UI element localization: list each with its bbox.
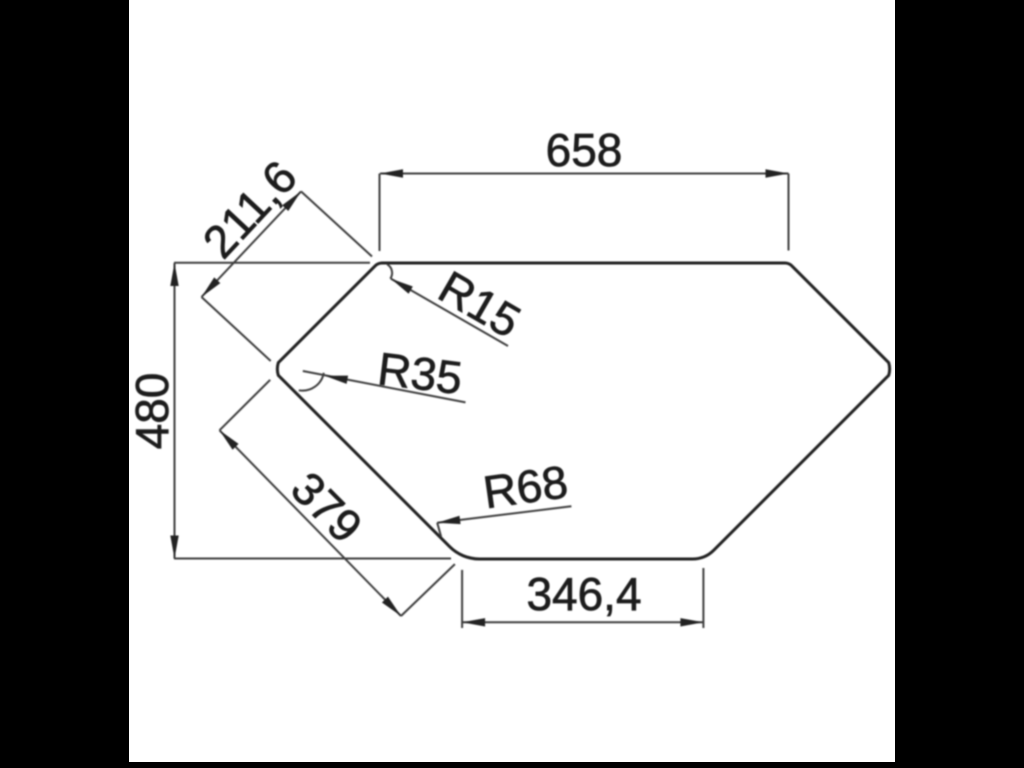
svg-text:480: 480 (126, 373, 178, 450)
svg-text:658: 658 (546, 124, 623, 176)
svg-text:211,6: 211,6 (193, 151, 307, 268)
svg-text:R15: R15 (430, 260, 529, 347)
svg-text:R35: R35 (375, 342, 465, 404)
svg-text:346,4: 346,4 (526, 568, 641, 620)
svg-text:379: 379 (281, 462, 372, 553)
